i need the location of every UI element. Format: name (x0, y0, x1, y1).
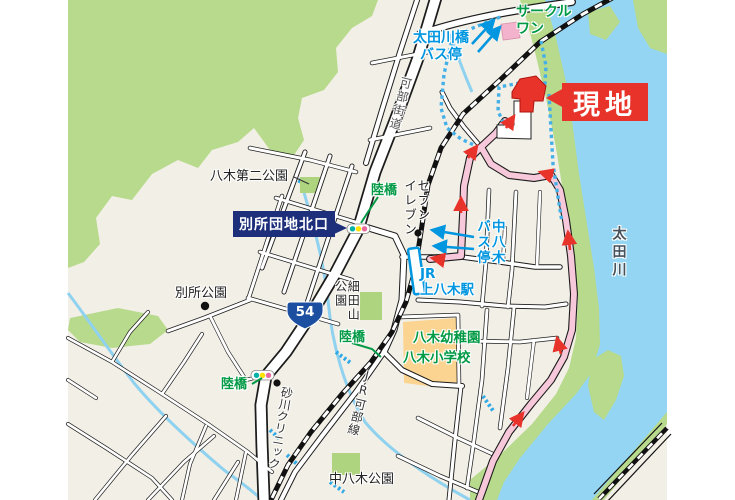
overpass-south-label: 陸橋 (221, 377, 247, 392)
yagi-elementary-school-label: 八木小学校 (403, 351, 471, 367)
traffic-signal-south (251, 371, 274, 381)
overpass-north-label: 陸橋 (371, 183, 397, 198)
area-map: 太田川橋 バス停 サークル ワン 現地 可部街道 八木第二公園 陸橋 別所団地北… (0, 0, 735, 500)
bessho-park-dot (201, 302, 209, 310)
bessho-danchi-north-exit-callout: 別所団地北口 (233, 211, 335, 237)
naka-yagi-park-label: 中八木公園 (329, 472, 394, 487)
yagi-daini-park-label: 八木第二公園 (210, 169, 288, 184)
site-callout: 現地 (562, 83, 648, 121)
bessho-park-label: 別所公園 (175, 286, 227, 301)
naka-yagi-bus-stop-label: 中八木 バス停 (474, 219, 504, 266)
traffic-signal-north (347, 224, 370, 234)
route-54-number: 54 (292, 304, 318, 320)
ota-river-label: 太田川 (610, 226, 627, 280)
overpass-middle-label: 陸橋 (339, 330, 365, 345)
circle-one-label: サークル ワン (516, 4, 572, 37)
seven-eleven-label: セブン イレブン (403, 179, 429, 237)
jr-kamiyagi-station-label: JR 上八木駅 (420, 267, 474, 299)
otagawa-bridge-bus-stop-label: 太田川橋 バス停 (413, 30, 469, 63)
hosodayama-park-label: 細田山 公園 (334, 280, 359, 322)
yagi-kindergarten-label: 八木幼稚園 (413, 331, 481, 347)
